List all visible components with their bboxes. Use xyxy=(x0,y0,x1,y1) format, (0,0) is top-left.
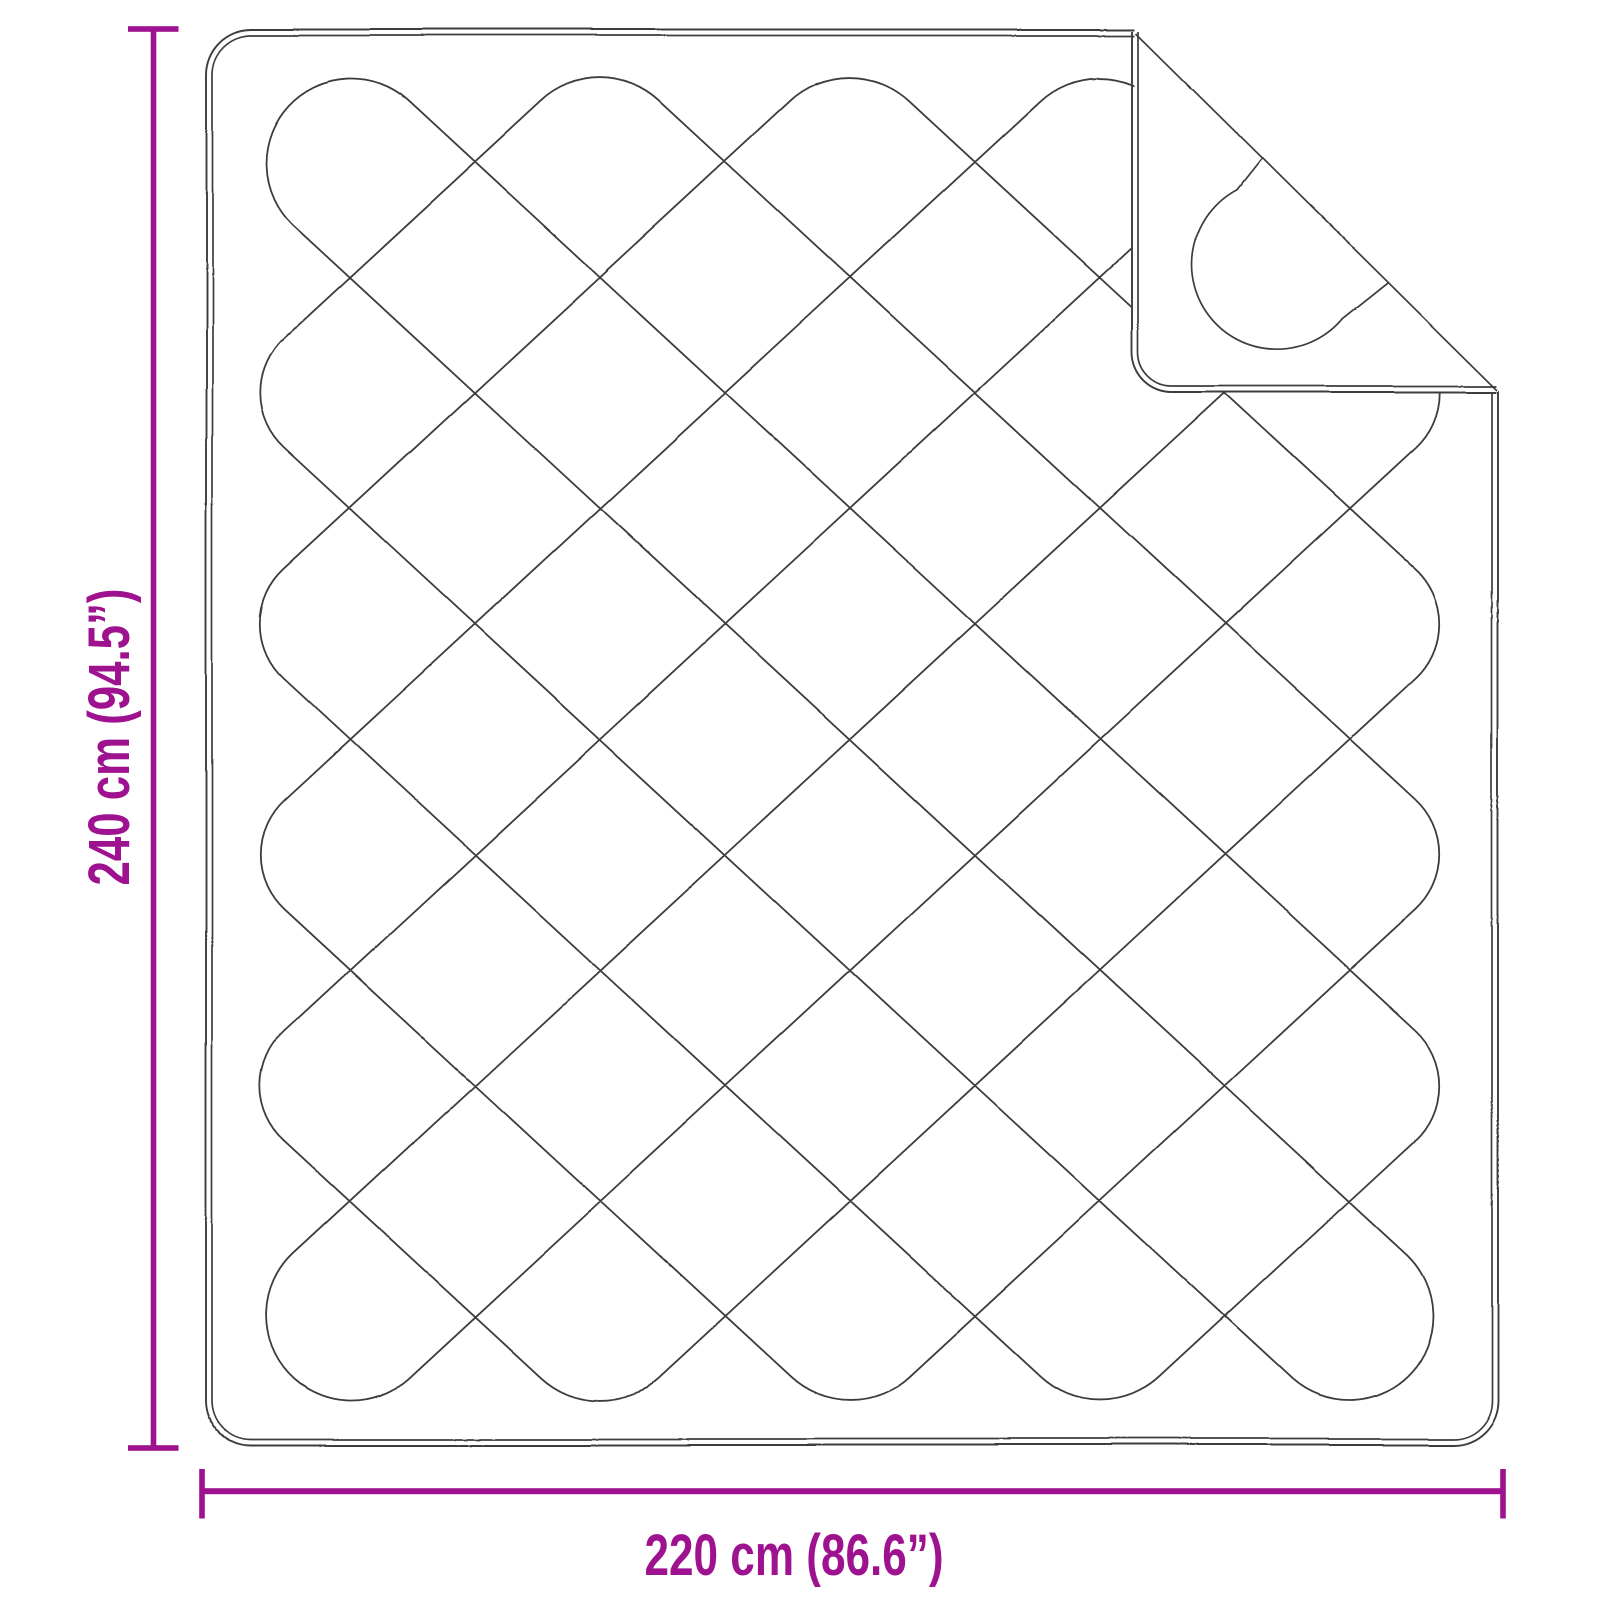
svg-text:240 cm (94.5”): 240 cm (94.5”) xyxy=(77,589,142,886)
svg-text:220 cm (86.6”): 220 cm (86.6”) xyxy=(645,1523,944,1588)
